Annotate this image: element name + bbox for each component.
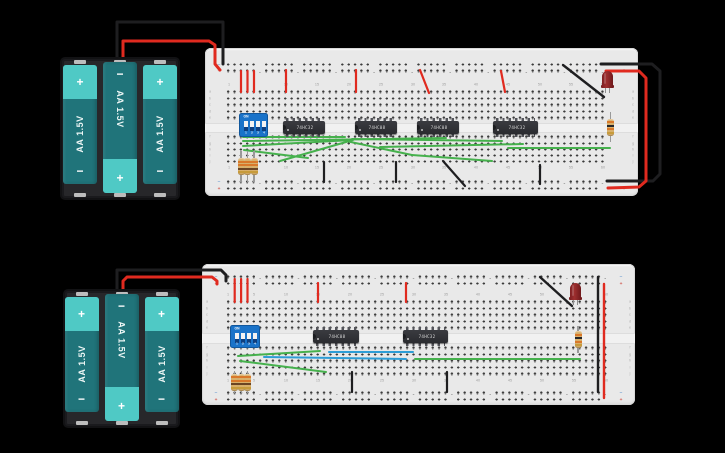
resistor-band [607, 132, 614, 134]
dip-slider[interactable] [241, 333, 245, 343]
battery-cell[interactable]: +−AA 1.5V [63, 65, 97, 184]
dip-slider[interactable] [262, 121, 266, 131]
ic-pin-row [286, 134, 322, 137]
resistor-band [575, 344, 582, 346]
wire-green[interactable] [346, 141, 412, 155]
resistor-band [607, 128, 614, 130]
dip-slider-handle[interactable] [235, 333, 239, 339]
ic-pin-row [420, 134, 456, 137]
battery-minus-sign: − [156, 164, 163, 178]
battery-pack[interactable]: +−AA 1.5V+−AA 1.5V+−AA 1.5V [63, 289, 180, 428]
ic-chip[interactable]: 74HC32 [283, 121, 325, 134]
battery-plus-sign: + [156, 75, 163, 89]
ic-chip[interactable]: 74HC08 [417, 121, 459, 134]
resistor[interactable] [251, 158, 258, 175]
resistor-band [251, 164, 258, 166]
dip-slider-handle[interactable] [262, 121, 266, 127]
circuit-canvas: 1155101015152020252530303535404045455050… [0, 0, 725, 453]
dip-slider-handle[interactable] [247, 333, 251, 339]
ic-notch [493, 125, 496, 130]
battery-minus-sign: − [76, 164, 83, 178]
ic-notch [355, 125, 358, 130]
battery-plus-sign: + [118, 399, 125, 413]
battery-terminal-contact [76, 292, 88, 296]
dip-slider[interactable] [235, 333, 239, 343]
ic-notch [283, 125, 286, 130]
dip-slider-handle[interactable] [244, 121, 248, 127]
battery-label: AA 1.5V [75, 115, 85, 152]
resistor-band [575, 334, 582, 336]
wire-blue[interactable] [264, 357, 406, 359]
resistor-band [244, 387, 251, 389]
dip-slider-handle[interactable] [241, 333, 245, 339]
battery-terminal-contact [114, 193, 126, 197]
battery-plus-sign: + [76, 75, 83, 89]
led[interactable] [602, 71, 613, 88]
ic-pin1-dot [287, 129, 289, 131]
ic-pin1-dot [407, 338, 409, 340]
ic-label: 74HC32 [418, 334, 435, 339]
battery-cell[interactable]: +−AA 1.5V [65, 297, 99, 412]
wire-black[interactable] [540, 277, 572, 306]
battery-cell[interactable]: +−AA 1.5V [103, 62, 137, 193]
dip-slider[interactable] [247, 333, 251, 343]
resistor-band [244, 376, 251, 378]
resistor[interactable] [575, 331, 582, 348]
resistor[interactable] [607, 119, 614, 136]
battery-minus-sign: − [158, 392, 165, 406]
dip-switch[interactable]: ON1234 [240, 114, 267, 136]
wire-black[interactable] [117, 270, 226, 291]
ic-pin-row [496, 134, 535, 137]
battery-minus-sign: − [118, 299, 125, 313]
resistor-band [575, 341, 582, 343]
ic-label: 74HC32 [508, 125, 525, 130]
dip-pin-number: 3 [248, 342, 250, 345]
ic-pin1-dot [317, 338, 319, 340]
led[interactable] [570, 283, 581, 300]
ic-chip[interactable]: 74HC08 [355, 121, 397, 134]
ic-label: 74HC08 [369, 125, 386, 130]
battery-cell[interactable]: +−AA 1.5V [145, 297, 179, 412]
battery-label: AA 1.5V [115, 91, 125, 128]
dip-pin-number: 4 [263, 131, 265, 134]
dip-pin-number: 2 [242, 342, 244, 345]
wire-green[interactable] [380, 144, 523, 147]
ic-chip[interactable]: 74HC08 [313, 330, 359, 343]
led-highlight [604, 73, 606, 84]
resistor-band [251, 161, 258, 163]
dip-slider[interactable] [256, 121, 260, 131]
battery-label: AA 1.5V [155, 115, 165, 152]
battery-cell[interactable]: +−AA 1.5V [105, 294, 139, 421]
battery-cell[interactable]: +−AA 1.5V [143, 65, 177, 184]
led-highlight [572, 285, 574, 296]
ic-notch [403, 334, 406, 339]
resistor-band [607, 121, 614, 123]
wire-red[interactable] [501, 71, 505, 92]
dip-pin-number: 1 [236, 342, 238, 345]
resistor-band [244, 380, 251, 382]
ic-pin1-dot [359, 129, 361, 131]
ic-notch [313, 334, 316, 339]
dip-pin-number: 4 [254, 342, 256, 345]
battery-terminal-contact [116, 421, 128, 425]
ic-notch [417, 125, 420, 130]
wire-green[interactable] [238, 351, 320, 356]
resistor[interactable] [244, 374, 251, 391]
dip-slider[interactable] [244, 121, 248, 131]
dip-slider[interactable] [253, 333, 257, 343]
wire-green[interactable] [352, 139, 502, 141]
dip-pin-number: 1 [245, 131, 247, 134]
ic-chip[interactable]: 74HC32 [493, 121, 538, 134]
dip-slider-handle[interactable] [256, 121, 260, 127]
ic-pin1-dot [421, 129, 423, 131]
battery-terminal-contact [156, 421, 168, 425]
battery-label: AA 1.5V [157, 345, 167, 382]
ic-pin1-dot [497, 129, 499, 131]
battery-label: AA 1.5V [117, 321, 127, 358]
battery-terminal-contact [154, 193, 166, 197]
ic-label: 74HC32 [297, 125, 314, 130]
wire-black[interactable] [443, 161, 465, 186]
battery-terminal-contact [154, 60, 166, 64]
wire-green[interactable] [412, 155, 492, 161]
ic-label: 74HC08 [431, 125, 448, 130]
wire-green[interactable] [240, 361, 326, 372]
ic-chip[interactable]: 74HC32 [403, 330, 448, 343]
battery-plus-sign: + [158, 307, 165, 321]
battery-terminal-contact [74, 193, 86, 197]
dip-pin-number: 3 [257, 131, 259, 134]
dip-on-label: ON [235, 327, 240, 330]
ic-pin-row [316, 343, 356, 346]
dip-switch[interactable]: ON1234 [231, 326, 259, 347]
resistor-band [251, 168, 258, 170]
resistor-band [575, 337, 582, 339]
wire-red[interactable] [420, 70, 429, 93]
battery-terminal-contact [74, 60, 86, 64]
dip-slider-handle[interactable] [250, 121, 254, 127]
battery-minus-sign: − [78, 392, 85, 406]
ic-pin-row [358, 134, 394, 137]
resistor-band [244, 383, 251, 385]
battery-terminal-contact [76, 421, 88, 425]
dip-slider-handle[interactable] [253, 333, 257, 339]
resistor-band [251, 171, 258, 173]
dip-slider[interactable] [250, 121, 254, 131]
battery-label: AA 1.5V [77, 345, 87, 382]
battery-minus-sign: − [116, 67, 123, 81]
battery-plus-sign: + [78, 307, 85, 321]
battery-pack[interactable]: +−AA 1.5V+−AA 1.5V+−AA 1.5V [60, 57, 180, 200]
resistor-band [607, 125, 614, 127]
battery-plus-sign: + [116, 171, 123, 185]
battery-terminal-contact [156, 292, 168, 296]
ic-label: 74HC08 [329, 334, 346, 339]
dip-pin-number: 2 [251, 131, 253, 134]
dip-on-label: ON [244, 115, 249, 118]
wire-black[interactable] [563, 65, 604, 97]
ic-pin-row [406, 343, 445, 346]
